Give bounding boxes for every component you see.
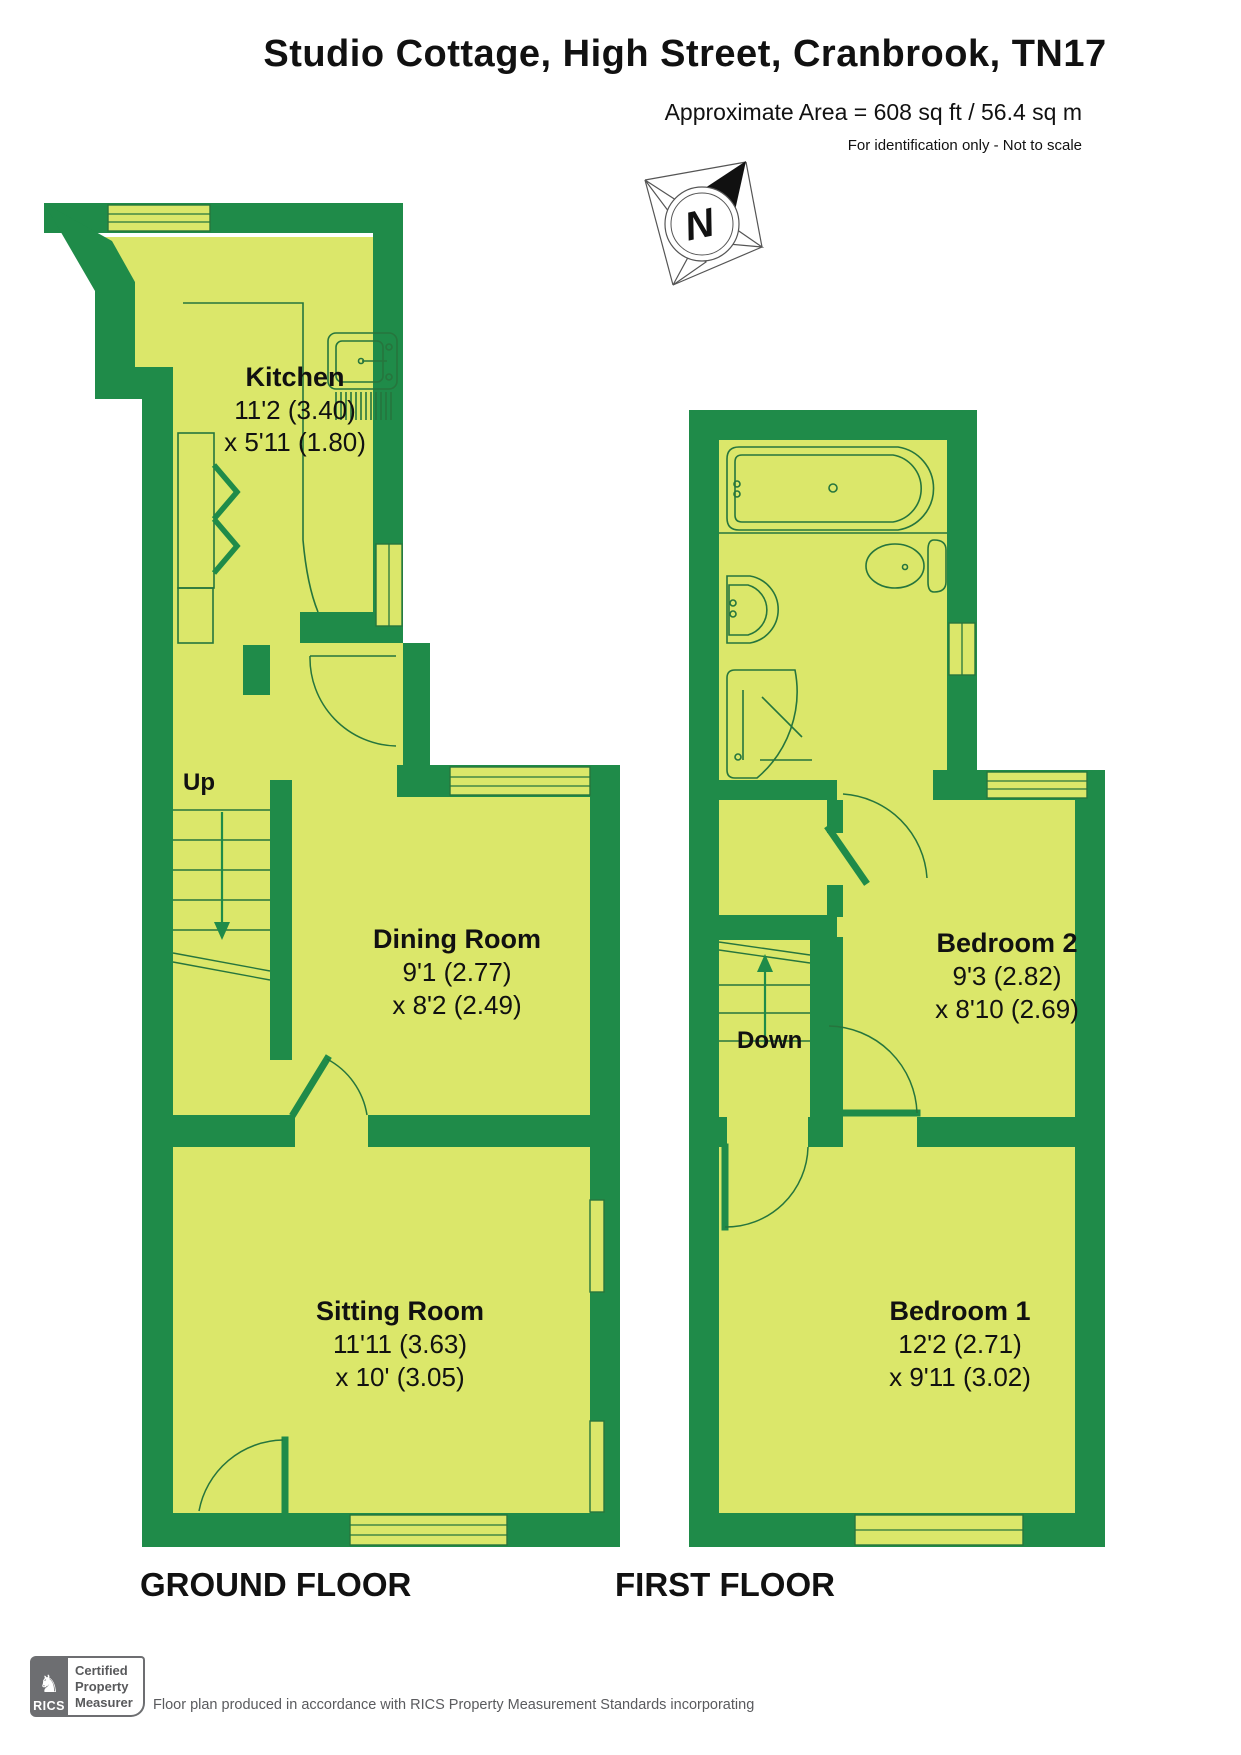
certified-property-measurer-badge: Certified Property Measurer bbox=[68, 1656, 145, 1717]
svg-text:x 5'11 (1.80): x 5'11 (1.80) bbox=[224, 427, 366, 457]
footer-disclaimer: Floor plan produced in accordance with R… bbox=[153, 1658, 754, 1755]
bedroom2-label: Bedroom 2 9'3 (2.82) x 8'10 (2.69) bbox=[935, 928, 1079, 1024]
dining-window bbox=[450, 767, 590, 795]
compass-icon: N bbox=[645, 161, 762, 285]
sitting-room-label: Sitting Room 11'11 (3.63) x 10' (3.05) bbox=[316, 1296, 484, 1392]
svg-text:x 8'2 (2.49): x 8'2 (2.49) bbox=[392, 990, 521, 1020]
bedroom1-bottom-window bbox=[855, 1515, 1023, 1545]
rics-wordmark: RICS bbox=[33, 1699, 65, 1713]
badge-line: Property bbox=[75, 1679, 143, 1695]
svg-text:Dining Room: Dining Room bbox=[373, 924, 541, 954]
stair-down-label: Down bbox=[737, 1027, 802, 1054]
stair-up-label: Up bbox=[183, 769, 215, 796]
svg-text:x 10' (3.05): x 10' (3.05) bbox=[335, 1362, 464, 1392]
badge-line: Certified bbox=[75, 1663, 143, 1679]
svg-text:11'11 (3.63): 11'11 (3.63) bbox=[333, 1329, 467, 1359]
svg-text:Bedroom 2: Bedroom 2 bbox=[936, 928, 1077, 958]
sitting-side-recess-upper bbox=[590, 1200, 604, 1292]
svg-text:9'3 (2.82): 9'3 (2.82) bbox=[952, 961, 1061, 991]
bedroom1-label: Bedroom 1 12'2 (2.71) x 9'11 (3.02) bbox=[889, 1296, 1031, 1392]
bathroom-side-window bbox=[949, 623, 975, 675]
svg-text:12'2 (2.71): 12'2 (2.71) bbox=[898, 1329, 1022, 1359]
svg-text:Kitchen: Kitchen bbox=[245, 362, 344, 392]
svg-text:9'1 (2.77): 9'1 (2.77) bbox=[402, 957, 511, 987]
floorplan-drawing: N bbox=[0, 0, 1241, 1755]
kitchen-top-window bbox=[108, 205, 210, 231]
svg-text:11'2 (3.40): 11'2 (3.40) bbox=[234, 395, 356, 425]
ground-floor-title: GROUND FLOOR bbox=[140, 1566, 411, 1603]
svg-text:Sitting Room: Sitting Room bbox=[316, 1296, 484, 1326]
ground-floor-plan: Up Kitchen 11'2 (3.40) x 5'11 (1.80) Din… bbox=[44, 203, 620, 1603]
disclaimer-line-1: Floor plan produced in accordance with R… bbox=[153, 1696, 754, 1715]
svg-text:x 8'10 (2.69): x 8'10 (2.69) bbox=[935, 994, 1079, 1024]
floorplan-page: Studio Cottage, High Street, Cranbrook, … bbox=[0, 0, 1241, 1755]
svg-text:Bedroom 1: Bedroom 1 bbox=[889, 1296, 1030, 1326]
kitchen-side-window bbox=[376, 544, 402, 626]
first-floor-plan: Down Bedroom 2 9'3 (2.82) x 8'10 (2.69) … bbox=[615, 410, 1105, 1603]
bedroom2-window bbox=[987, 772, 1087, 798]
sitting-bottom-window bbox=[350, 1515, 507, 1545]
first-floor-title: FIRST FLOOR bbox=[615, 1566, 835, 1603]
badge-line: Measurer bbox=[75, 1695, 143, 1711]
svg-text:x 9'11 (3.02): x 9'11 (3.02) bbox=[889, 1362, 1031, 1392]
rics-logo: ♞ RICS bbox=[30, 1656, 68, 1717]
rics-lion-icon: ♞ bbox=[38, 1673, 60, 1697]
sitting-side-recess-lower bbox=[590, 1421, 604, 1512]
